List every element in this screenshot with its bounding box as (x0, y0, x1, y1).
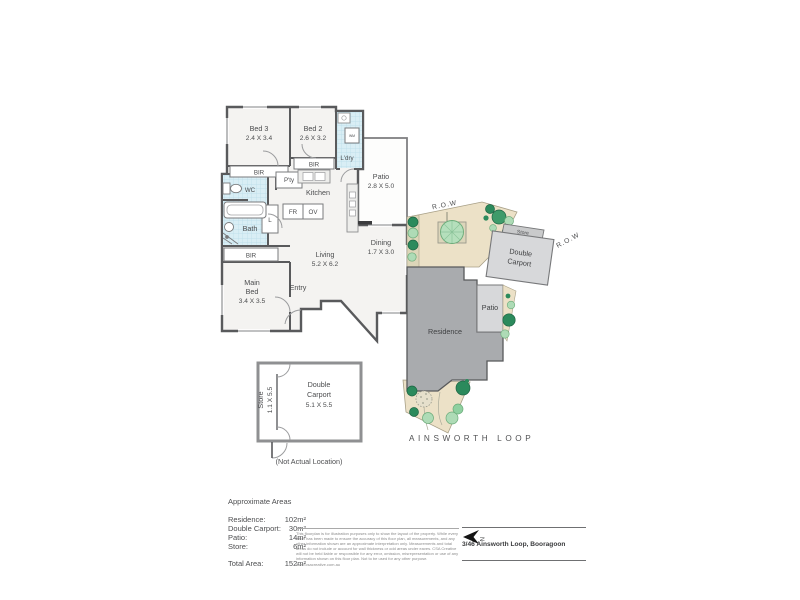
window (382, 311, 400, 315)
pantry-label: P'ty (284, 177, 295, 184)
area-label: Patio: (228, 533, 247, 542)
sink-bowl-icon (315, 173, 325, 181)
street-label: AINSWORTH LOOP (409, 434, 534, 443)
areas-title: Approximate Areas (228, 497, 306, 506)
tree-icon (501, 330, 509, 338)
north-letter: N (478, 537, 484, 541)
tree-icon (423, 413, 434, 424)
bed2-label: Bed 2 (304, 124, 323, 133)
fridge-label: FR (289, 209, 298, 216)
window (225, 118, 229, 144)
tree-icon (408, 240, 418, 250)
main-bed-label-1: Main (244, 278, 260, 287)
dining-dims: 1.7 X 3.0 (368, 249, 395, 256)
tree-icon (408, 217, 418, 227)
bed3-dims: 2.4 X 3.4 (246, 135, 273, 142)
area-row: Patio: 14m² (228, 533, 306, 542)
kitchen-bench-icon (347, 184, 358, 232)
site-plan: Store Double Carport (403, 200, 581, 443)
not-actual-location-note: (Not Actual Location) (276, 457, 343, 466)
tree-icon (456, 381, 470, 395)
tree-icon (507, 301, 515, 309)
bath-label: Bath (243, 224, 258, 233)
patio-side-trees (501, 285, 516, 341)
area-label: Residence: (228, 515, 266, 524)
carport-label-2: Carport (307, 390, 331, 399)
bed3-label: Bed 3 (250, 124, 269, 133)
tree-icon (408, 253, 416, 261)
plan-canvas: Bed 3 2.4 X 3.4 Bed 2 2.6 X 3.2 L'dry WM… (0, 0, 800, 600)
tree-icon (483, 215, 488, 220)
area-label: Double Carport: (228, 524, 281, 533)
area-value: 102m² (285, 515, 306, 524)
carport-label-1: Double (308, 380, 331, 389)
sink-bowl-icon (303, 173, 313, 181)
site-residence-label: Residence (428, 327, 462, 336)
cooktop-icon (350, 210, 356, 216)
tree-icon (407, 386, 417, 396)
wm-label: WM (349, 134, 355, 138)
tree-icon (408, 228, 418, 238)
disclaimer: This floorplan is for illustration purpo… (296, 528, 459, 567)
disclaimer-website: www.csacreative.com.au (296, 562, 459, 567)
carport-store-label: Store (256, 391, 265, 408)
laundry-label: L'dry (340, 155, 354, 162)
tree-icon (465, 379, 469, 383)
dining-label: Dining (371, 238, 391, 247)
tree-icon (410, 408, 419, 417)
area-row: Store: 6m² (228, 542, 306, 551)
tree-icon (492, 210, 506, 224)
north-arrow-icon: N (462, 528, 486, 546)
entry-label: Entry (290, 283, 307, 292)
living-dims: 5.2 X 6.2 (312, 261, 339, 268)
carport-dims: 5.1 X 5.5 (306, 402, 333, 409)
pebble-circle-icon (416, 391, 432, 407)
tree-icon (490, 225, 497, 232)
window (220, 285, 224, 315)
tree-icon (453, 404, 463, 414)
door-arc-icon (272, 443, 287, 458)
cooktop-icon (350, 201, 356, 207)
window (299, 105, 321, 109)
tree-icon (506, 294, 511, 299)
area-row: Double Carport: 30m² (228, 524, 306, 533)
patio-dims: 2.8 X 5.0 (368, 183, 395, 190)
carport-store-dims: 1.1 X 5.5 (267, 386, 274, 413)
patio-step-icon (358, 221, 372, 225)
tree-icon (486, 205, 495, 214)
main-bed-dims: 3.4 X 3.5 (239, 298, 266, 305)
main-bed-label-2: Bed (246, 287, 259, 296)
floorplan-page: Bed 3 2.4 X 3.4 Bed 2 2.6 X 3.2 L'dry WM… (0, 0, 800, 600)
window (238, 329, 270, 333)
area-row: Residence: 102m² (228, 515, 306, 524)
bathtub-icon (224, 202, 266, 218)
total-label: Total Area: (228, 559, 263, 568)
basin-icon (225, 223, 234, 232)
disclaimer-text: This floorplan is for illustration purpo… (296, 531, 458, 561)
wc-label: WC (245, 187, 256, 194)
tree-canopy-lines (441, 221, 463, 243)
patio-room (358, 138, 407, 225)
laundry-trough-icon (338, 113, 350, 123)
bir-label: BIR (246, 253, 257, 260)
cooktop-icon (350, 192, 356, 198)
address-bar: N 3/46 Ainsworth Loop, Booragoon (462, 527, 586, 561)
site-carport: Double Carport (486, 231, 554, 285)
oven-label: OV (309, 209, 319, 216)
bir-label: BIR (309, 162, 320, 169)
living-label: Living (316, 250, 335, 259)
kitchen-label: Kitchen (306, 188, 330, 197)
linen-label: L (268, 217, 272, 224)
window (243, 105, 267, 109)
site-patio-label: Patio (482, 303, 498, 312)
area-label: Store: (228, 542, 248, 551)
carport-plan: Store 1.1 X 5.5 Double Carport 5.1 X 5.5… (256, 363, 361, 466)
tree-icon (503, 314, 515, 326)
area-total-row: Total Area: 152m² (228, 559, 306, 568)
bed2-dims: 2.6 X 3.2 (300, 135, 327, 142)
floor-plan: Bed 3 2.4 X 3.4 Bed 2 2.6 X 3.2 L'dry WM… (220, 105, 409, 341)
patio-label: Patio (373, 172, 389, 181)
approximate-areas: Approximate Areas Residence: 102m² Doubl… (228, 497, 306, 568)
bir-label: BIR (254, 170, 265, 177)
row-label-right: R.O.W (555, 232, 581, 250)
